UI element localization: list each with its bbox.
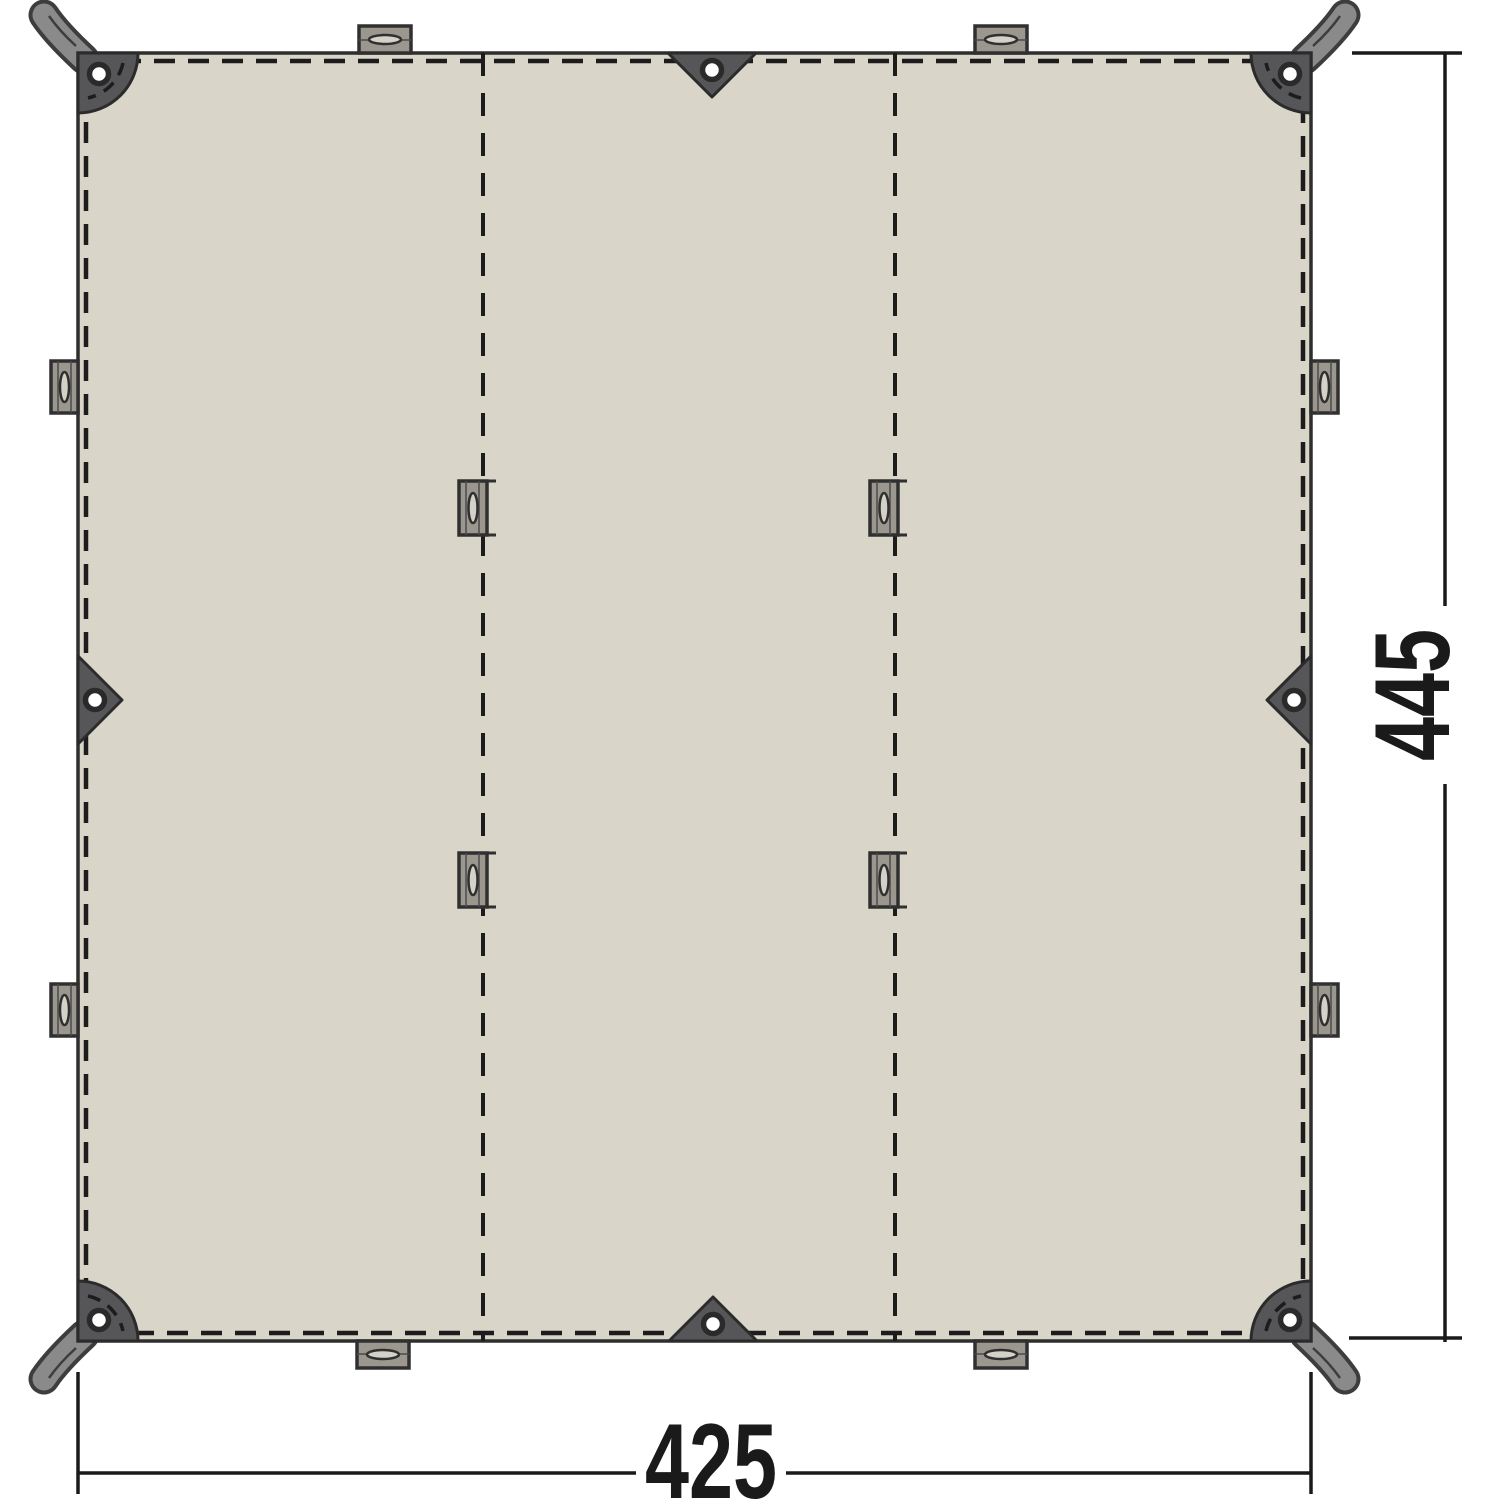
diagram-canvas: 425 445 xyxy=(0,0,1500,1500)
height-dimension-label: 445 xyxy=(1352,629,1471,761)
edge-tab-bottom-right xyxy=(975,1341,1027,1368)
edge-tab-top-left xyxy=(359,26,411,53)
edge-tab-bottom-left xyxy=(357,1341,409,1368)
width-dimension-label: 425 xyxy=(645,1401,777,1500)
tarp-diagram: 425 445 xyxy=(0,0,1500,1500)
edge-tab-left-lower xyxy=(51,984,78,1036)
edge-tab-right-upper xyxy=(1311,361,1338,413)
edge-tab-right-lower xyxy=(1311,984,1338,1036)
tarp-fabric xyxy=(78,53,1311,1341)
edge-tab-top-right xyxy=(975,26,1027,53)
edge-tab-left-upper xyxy=(51,361,78,413)
